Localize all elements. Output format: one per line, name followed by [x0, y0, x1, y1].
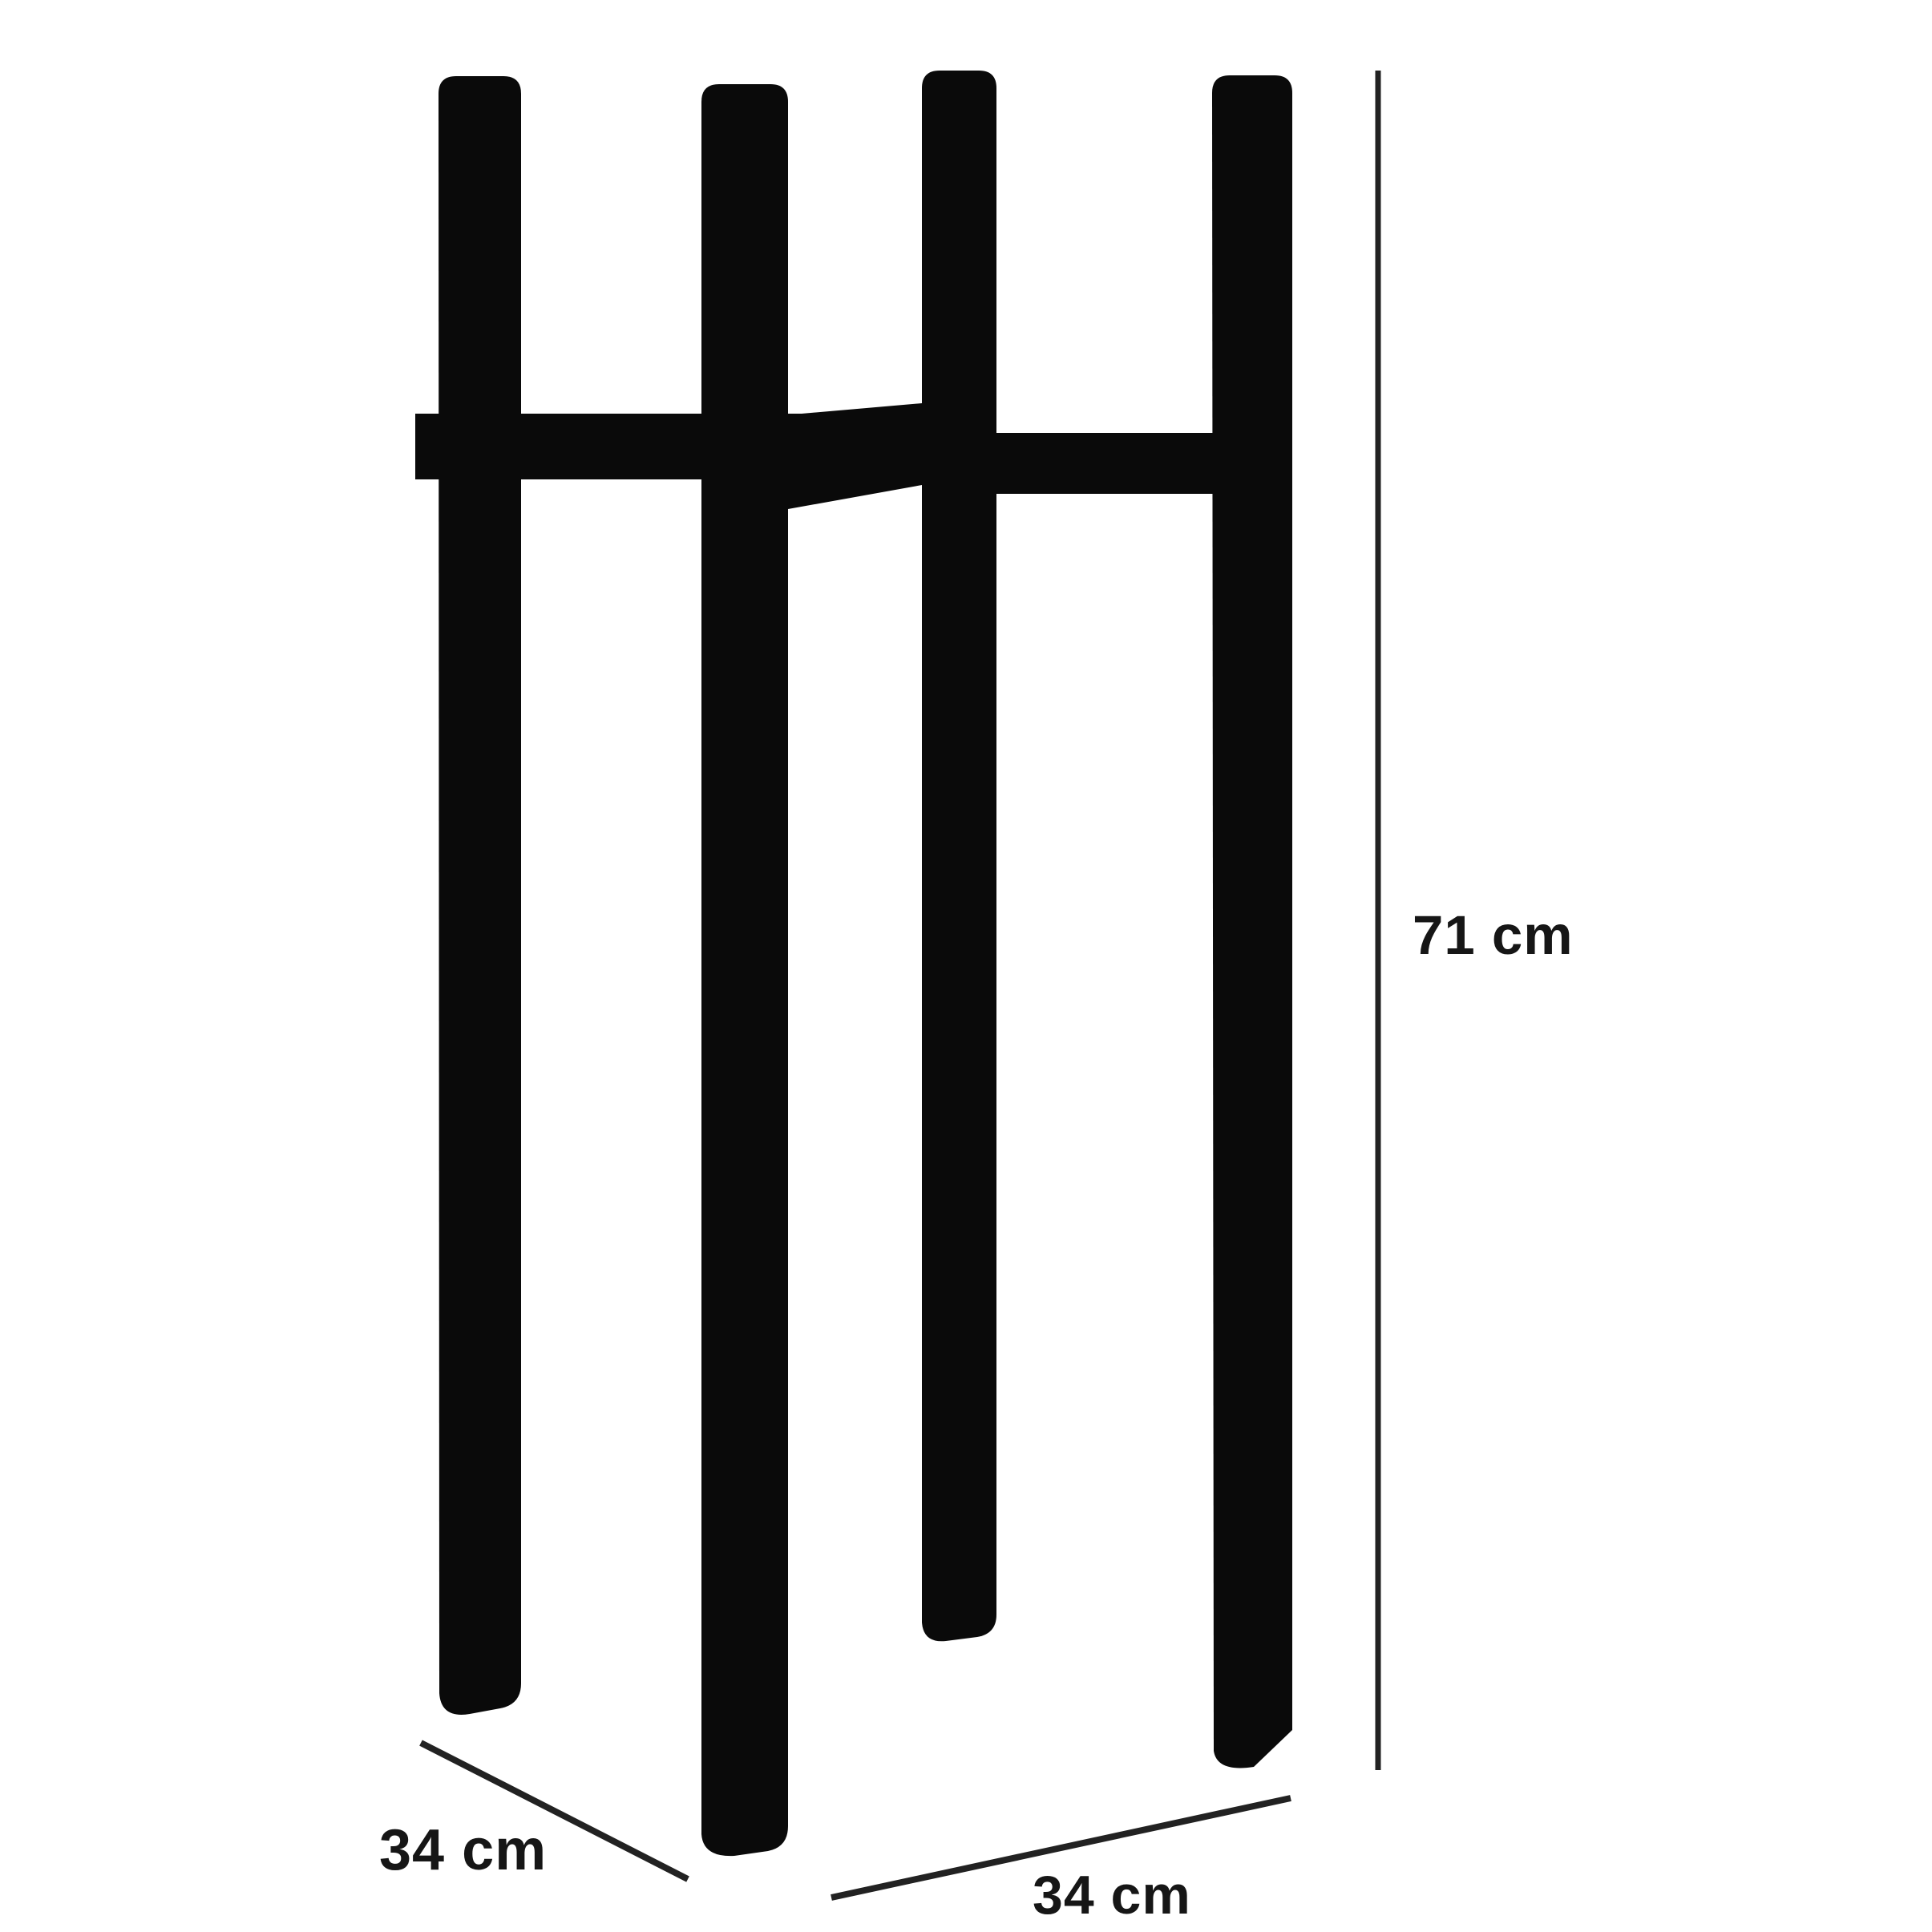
- depth-label: 34 cm: [379, 1818, 547, 1882]
- plant-stand-drawing: 71 cm 34 cm 34 cm: [0, 0, 1932, 1932]
- width-label: 34 cm: [1033, 1865, 1191, 1926]
- leg-back-left: [439, 76, 521, 1715]
- leg-front-left: [701, 84, 788, 1856]
- leg-back-right: [922, 71, 996, 1641]
- leg-front-right: [1212, 75, 1292, 1768]
- height-label: 71 cm: [1413, 904, 1574, 966]
- dimension-diagram: 71 cm 34 cm 34 cm: [0, 0, 1932, 1932]
